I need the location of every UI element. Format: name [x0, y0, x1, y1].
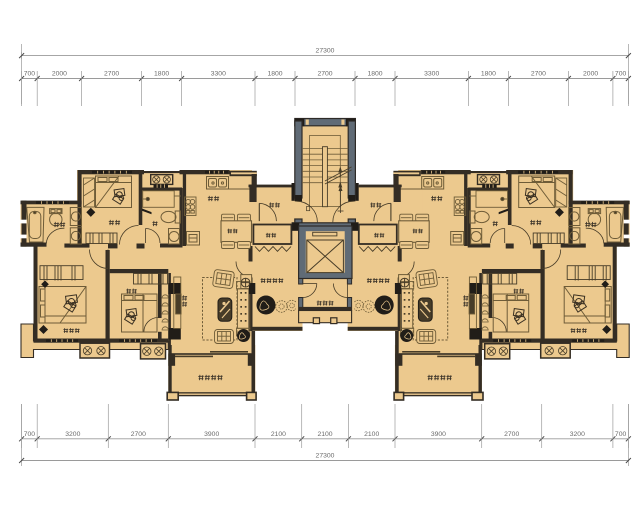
svg-text:2100: 2100 [271, 431, 286, 438]
svg-text:3200: 3200 [65, 431, 80, 438]
svg-text:2100: 2100 [317, 431, 332, 438]
svg-text:2700: 2700 [317, 71, 332, 78]
svg-text:3300: 3300 [211, 71, 226, 78]
svg-text:700: 700 [615, 431, 627, 438]
svg-text:3900: 3900 [204, 431, 219, 438]
svg-text:1800: 1800 [481, 71, 496, 78]
svg-text:2000: 2000 [52, 71, 67, 78]
svg-text:700: 700 [24, 431, 36, 438]
svg-text:1800: 1800 [267, 71, 282, 78]
svg-text:2700: 2700 [504, 431, 519, 438]
svg-text:2000: 2000 [583, 71, 598, 78]
svg-text:3200: 3200 [570, 431, 585, 438]
svg-text:1800: 1800 [367, 71, 382, 78]
svg-text:2100: 2100 [364, 431, 379, 438]
svg-text:27300: 27300 [316, 48, 335, 55]
svg-text:2700: 2700 [531, 71, 546, 78]
svg-text:2700: 2700 [104, 71, 119, 78]
svg-text:3900: 3900 [431, 431, 446, 438]
svg-text:1800: 1800 [154, 71, 169, 78]
svg-text:2700: 2700 [131, 431, 146, 438]
svg-text:700: 700 [24, 71, 36, 78]
svg-text:27300: 27300 [316, 453, 335, 460]
svg-text:3300: 3300 [424, 71, 439, 78]
svg-text:700: 700 [615, 71, 627, 78]
